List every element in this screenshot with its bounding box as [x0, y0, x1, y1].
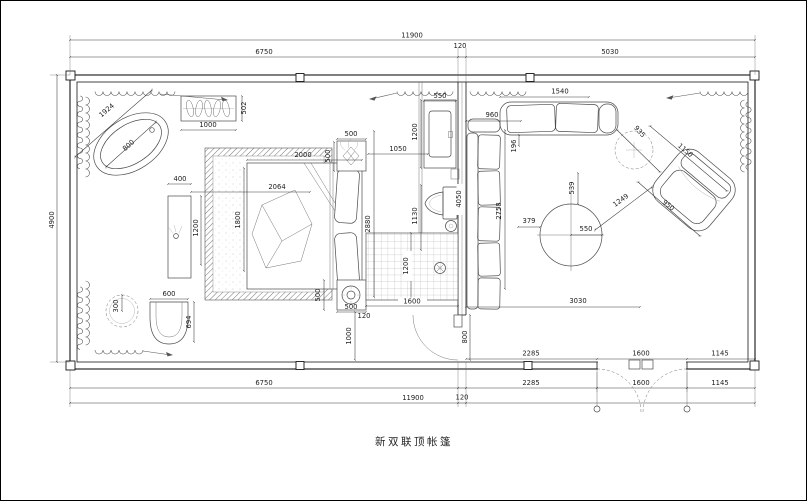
- dim-nightstand-bottom-depth: 500: [314, 289, 322, 302]
- curtain-left-lower: [86, 281, 90, 345]
- side-table: [615, 131, 653, 169]
- planter-box: [181, 96, 236, 121]
- dim-side-table: 935: [632, 124, 647, 139]
- dimension-labels: 11900 6750 120 5030 4900 2285 1600 1145 …: [48, 32, 729, 403]
- dim-vanity-width: 400: [174, 175, 187, 183]
- dim-table-radius: 550: [580, 225, 593, 233]
- nightstand-top: [337, 139, 366, 171]
- dim-bottom-r1-a: 2285: [522, 350, 539, 358]
- curtain-top-right: [700, 92, 748, 96]
- dim-armchair-depth: 950: [661, 198, 676, 212]
- dim-bottom-r1-b: 1600: [632, 350, 649, 358]
- faucet-icon: [174, 234, 179, 239]
- paper-holder-icon: [446, 221, 457, 232]
- curtain-top-living: [470, 92, 526, 96]
- dim-table-offset: 379: [523, 217, 536, 225]
- dim-bed-zone-depth: 2880: [364, 215, 372, 232]
- dim-living-width: 3030: [569, 297, 586, 305]
- dim-partition-length: 4050: [455, 190, 463, 207]
- dim-tub-radius: 800: [121, 138, 136, 153]
- dim-top-left: 6750: [255, 48, 272, 56]
- dining-table: [537, 188, 604, 271]
- double-bed: [247, 163, 362, 289]
- dim-bed-width: 2000: [294, 151, 311, 159]
- dim-sofa-length: 2758: [495, 202, 503, 219]
- dim-sofa-top-width: 1540: [551, 88, 568, 96]
- dim-basin-width: 550: [434, 92, 447, 100]
- sofa-top: [500, 102, 618, 135]
- dim-stool-radius: 300: [112, 300, 120, 313]
- dim-nightstand-top-width: 500: [345, 130, 358, 138]
- vanity-counter: [168, 196, 191, 278]
- dim-chair-width: 600: [163, 290, 176, 298]
- curtain-bottom-left: [95, 350, 143, 354]
- dim-bottom-gap: 120: [456, 394, 469, 402]
- dim-left-height: 4900: [48, 211, 56, 228]
- dim-bottom-r2-a: 2285: [522, 379, 539, 387]
- plan-title: 新双联顶帐篷: [375, 435, 453, 448]
- dim-bottom-r2-left: 6750: [255, 379, 272, 387]
- dim-sofa-offset: 960: [486, 111, 499, 119]
- dim-top-total: 11900: [401, 32, 423, 40]
- dim-planter-depth: 502: [240, 102, 248, 115]
- dim-bed-to-wall: 1050: [389, 145, 406, 153]
- dim-table-gap: 539: [568, 182, 576, 195]
- tub-drain-icon: [150, 128, 155, 133]
- dim-tub-to-bed: 2064: [268, 183, 285, 191]
- dim-vanity-length: 1200: [192, 219, 200, 236]
- interior-door: [413, 315, 462, 360]
- dim-planter-width: 1000: [199, 121, 216, 129]
- dim-top-gap: 120: [454, 42, 467, 50]
- dim-basin-depth: 1200: [411, 123, 419, 140]
- dim-nightstand-gap: 120: [358, 312, 371, 320]
- floor-plan-canvas: 11900 6750 120 5030 4900 2285 1600 1145 …: [0, 0, 807, 501]
- dim-shower-width: 1600: [403, 298, 420, 306]
- dim-nightstand-top-depth: 500: [324, 150, 332, 163]
- dim-door-width: 800: [461, 331, 469, 344]
- dim-shower-depth: 1200: [402, 257, 410, 274]
- dim-toilet-depth: 1130: [411, 207, 419, 224]
- dim-table-to-chair: 1249: [611, 192, 630, 209]
- glass-partition: [419, 82, 422, 233]
- dim-bottom-r1-c: 1145: [711, 350, 728, 358]
- dim-sofa-gap: 196: [510, 140, 518, 153]
- curtain-left-upper: [86, 97, 90, 177]
- armchair: [647, 143, 742, 237]
- pony-chair: [150, 302, 188, 344]
- dim-carpet-side: 1800: [234, 211, 242, 228]
- wash-basin-cabinet: [424, 100, 456, 168]
- curtain-top-left: [95, 92, 175, 96]
- toilet: [425, 169, 459, 232]
- dim-tub-diagonal: 1924: [98, 102, 116, 119]
- dim-chair-depth: 694: [185, 316, 193, 329]
- dim-bottom-total: 11900: [402, 394, 424, 402]
- dim-bottom-r2-c: 1145: [711, 379, 728, 387]
- dim-nightstand-to-wall: 1000: [345, 327, 353, 344]
- dim-nightstand-bottom-width: 500: [345, 303, 358, 311]
- dim-bottom-r2-b: 1600: [632, 379, 649, 387]
- dim-top-right: 5030: [601, 48, 618, 56]
- floor-plan-drawing: 11900 6750 120 5030 4900 2285 1600 1145 …: [0, 0, 807, 501]
- basin-handle: [449, 132, 453, 138]
- curtain-right: [741, 100, 745, 172]
